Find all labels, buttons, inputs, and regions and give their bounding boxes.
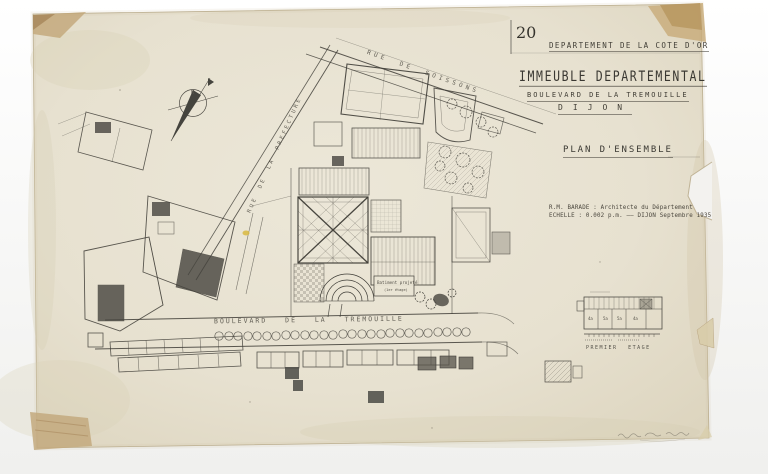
inset-room-label: 4a (588, 316, 593, 321)
building-sublabel: (1er étage) (384, 288, 408, 292)
plan-name: PLAN D'ENSEMBLE (563, 146, 673, 158)
tape-bottom-left (30, 412, 92, 450)
drawing-title: IMMEUBLE DEPARTEMENTAL (519, 69, 707, 87)
inset-room-label: 4a (633, 316, 638, 321)
inset-caption: PREMIER ETAGE (586, 345, 651, 351)
compass-n-label: N (191, 90, 194, 96)
architect-credit: R.M. BARADE : Architecte du Département (549, 205, 693, 211)
scanned-architectural-plan: N Batiment projeté (1er étage) 4a 5a 5a … (0, 0, 768, 474)
inset-room-label: 5a (617, 316, 622, 321)
scale-date-line: ECHELLE : 0.002 p.m. —— DIJON Septembre … (549, 213, 711, 219)
department-title: DEPARTEMENT DE LA COTE D'OR (549, 42, 709, 52)
inset-room-label: 5a (603, 316, 608, 321)
building-label: Batiment projeté (377, 280, 418, 285)
drawing-subtitle: BOULEVARD DE LA TREMOUILLE (527, 92, 689, 102)
yellow-highlight-mark (243, 231, 250, 236)
city-name: DIJON (558, 104, 632, 115)
sheet-number: 20 (516, 24, 536, 42)
